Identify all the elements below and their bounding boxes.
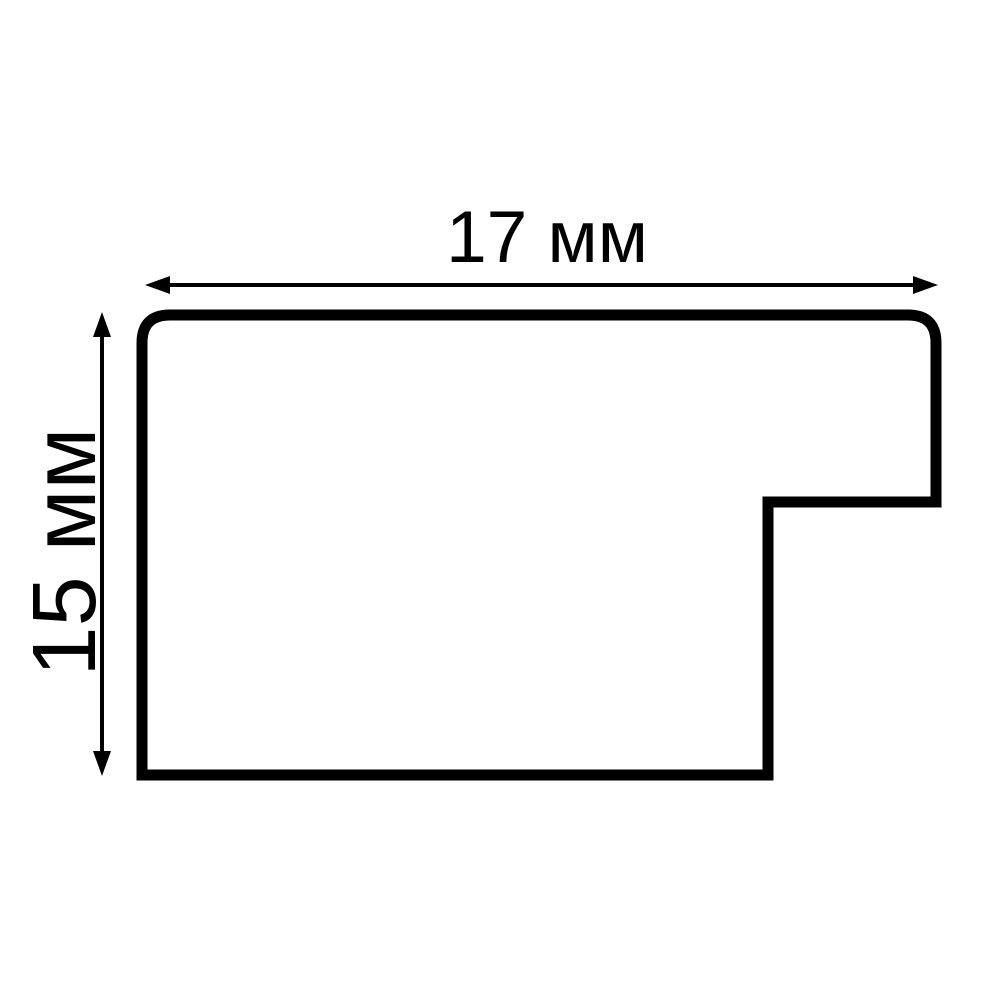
height-dimension-label: 15 мм: [15, 428, 115, 677]
width-arrowhead-right-icon: [913, 276, 938, 294]
diagram-canvas: 17 мм 15 мм: [0, 0, 1000, 1000]
width-arrowhead-left-icon: [145, 276, 170, 294]
width-dimension: 17 мм: [145, 197, 938, 294]
height-arrowhead-bottom-icon: [93, 751, 111, 776]
profile-diagram-svg: 17 мм 15 мм: [0, 0, 1000, 1000]
height-dimension: 15 мм: [15, 312, 115, 776]
width-dimension-label: 17 мм: [446, 197, 648, 278]
height-arrowhead-top-icon: [93, 312, 111, 337]
profile-outline-shape: [142, 315, 936, 775]
